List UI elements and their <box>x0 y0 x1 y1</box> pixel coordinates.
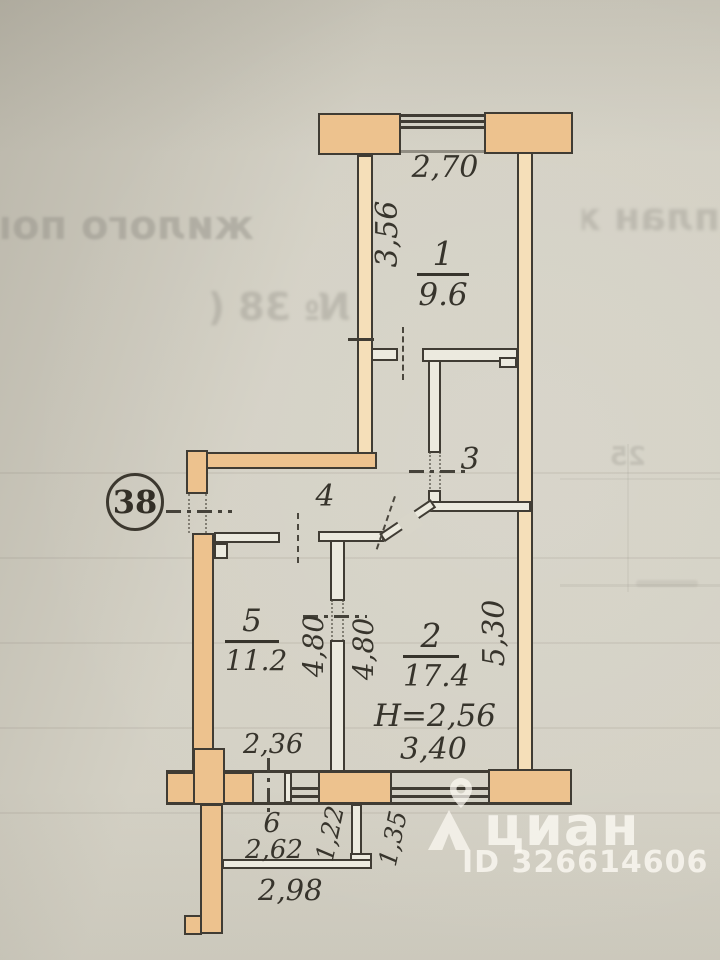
wall-pier-top-right <box>484 112 573 154</box>
room1-label: 1 9.6 <box>417 237 469 311</box>
floor-plan-photo: жилого пом план ж № 38 ( 25 <box>0 0 720 960</box>
wall-cross-block-vertical <box>193 748 225 805</box>
dimension-top-width: 2,70 <box>405 153 485 183</box>
room2-door-leaf <box>376 496 396 550</box>
window-room5-line <box>292 787 318 790</box>
room2-number: 2 <box>403 619 459 658</box>
dimension-balcony-outer-width: 2,98 <box>258 876 322 905</box>
paper-scan-band <box>0 727 720 729</box>
ghost-table-line-vertical <box>627 444 629 592</box>
dimension-room1-depth: 3,56 <box>373 194 403 274</box>
ghost-table-number: 25 <box>604 444 646 470</box>
wall-segment <box>214 532 280 543</box>
room4-number: 4 <box>312 482 338 512</box>
balcony-door <box>267 758 270 812</box>
ghost-text-line2: № 38 ( <box>168 288 350 334</box>
wall-entrance-stub <box>186 450 208 494</box>
ghost-text-line1-left: жилого пом <box>2 206 254 258</box>
wall-column-notch <box>499 357 517 368</box>
room2-area: 17.4 <box>403 658 459 692</box>
wall-stub <box>284 772 292 803</box>
room5-door <box>297 513 299 563</box>
wall-segment <box>330 640 345 773</box>
dimension-room2-depth: 4,80 <box>350 609 378 689</box>
dimension-balcony-width: 2,62 <box>244 837 304 863</box>
paper-scan-band <box>0 472 720 474</box>
ghost-table-line <box>560 478 720 480</box>
wall-segment <box>330 540 345 601</box>
wall-left-outer <box>192 533 214 774</box>
room52-door-jamb <box>331 600 333 641</box>
dimension-room2-width: 3,40 <box>400 735 460 765</box>
watermark-listing-id: ID 326614606 <box>462 848 708 878</box>
room1-area: 9.6 <box>417 276 469 311</box>
apartment-number-circle: 38 <box>106 473 164 531</box>
paper-scan-band <box>0 557 720 559</box>
entrance-door-jamb <box>188 494 190 533</box>
room5-area: 11.2 <box>225 643 279 675</box>
window-room2-line <box>392 795 490 798</box>
wall-bottom-middle-block <box>318 771 392 804</box>
room6-number: 6 <box>258 810 286 837</box>
window-top-line <box>399 120 486 123</box>
window-top-line <box>399 114 486 117</box>
map-pin-icon <box>450 778 472 808</box>
wall-balcony-foot <box>184 915 202 935</box>
window-room5-line <box>292 795 318 798</box>
wall-room3-bottom <box>428 501 531 512</box>
ceiling-height-note: Н=2,56 <box>374 701 486 732</box>
wall-segment <box>318 531 384 542</box>
ghost-text-line1-right: план ж <box>582 198 720 248</box>
wall-hallway-top <box>205 452 377 469</box>
room5-label: 5 11.2 <box>225 606 279 675</box>
wall-balcony-right <box>351 804 362 855</box>
ghost-table-smudge <box>636 580 698 587</box>
wall-segment <box>428 360 441 453</box>
dimension-room5-width: 2,36 <box>243 731 303 758</box>
room1-door <box>402 327 404 380</box>
dimension-room5-depth: 4,80 <box>300 606 328 686</box>
room2-label: 2 17.4 <box>403 619 459 692</box>
entrance-door-leader <box>166 510 232 513</box>
wall-outer-right <box>517 152 533 772</box>
room3-number: 3 <box>457 445 483 475</box>
window-top-line <box>399 126 486 129</box>
dimension-balcony-depth-right: 1,35 <box>375 807 412 871</box>
wall-room1-left <box>357 155 373 455</box>
dimension-right-wall: 5,30 <box>480 593 510 673</box>
wall-notch <box>214 543 228 559</box>
apartment-number: 38 <box>113 483 158 521</box>
room52-door-jamb <box>342 600 344 641</box>
room5-number: 5 <box>225 606 279 643</box>
window-room2-line <box>392 787 490 790</box>
wall-segment <box>371 348 398 361</box>
wall-pier-top-left <box>318 113 401 155</box>
wall-balcony-left <box>200 804 223 934</box>
entrance-door-jamb <box>205 494 207 533</box>
room1-number: 1 <box>417 237 469 276</box>
cian-logo-icon <box>428 810 470 850</box>
room1-door-tick <box>348 338 374 341</box>
